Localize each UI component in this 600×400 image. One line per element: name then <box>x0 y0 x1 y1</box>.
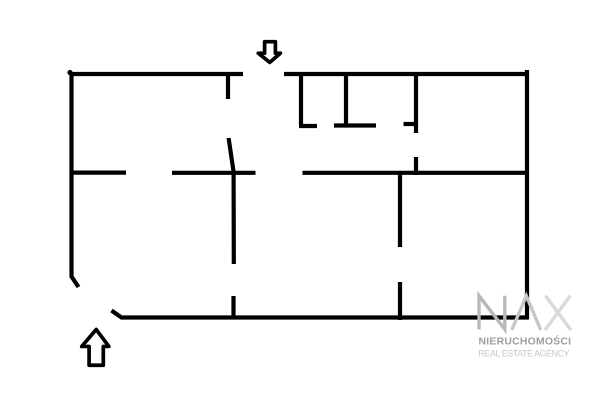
svg-text:NIERUCHOMOŚCI: NIERUCHOMOŚCI <box>479 335 572 348</box>
svg-text:REAL ESTATE AGENCY: REAL ESTATE AGENCY <box>479 349 570 359</box>
